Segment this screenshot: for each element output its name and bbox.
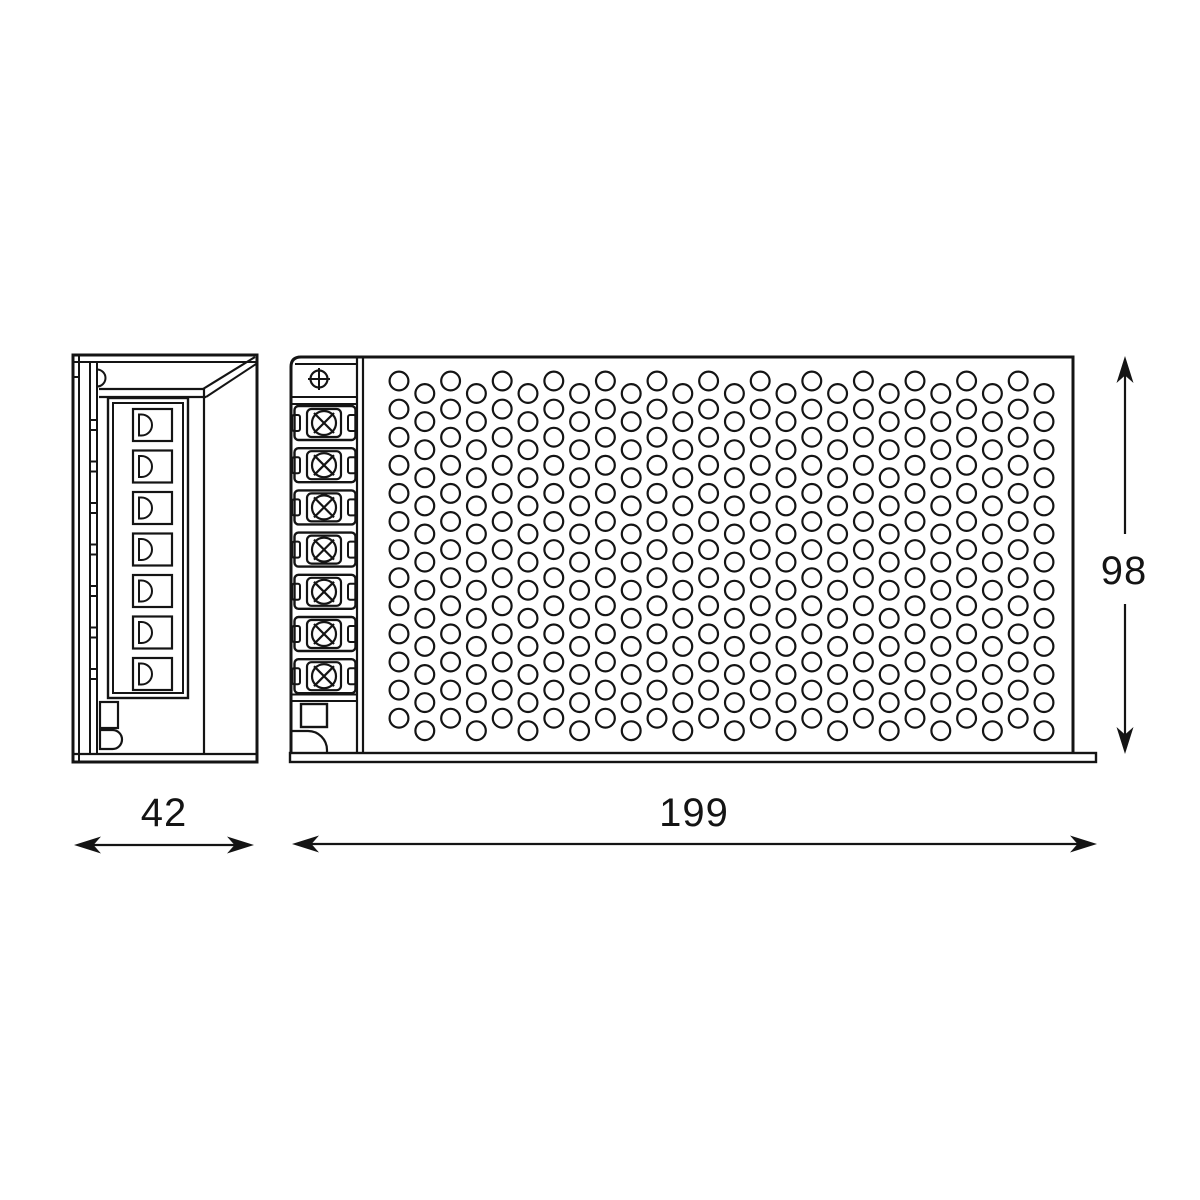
vent-hole: [880, 553, 899, 572]
vent-hole: [519, 412, 538, 431]
vent-hole: [570, 497, 589, 516]
vent-hole: [467, 665, 486, 684]
vent-hole: [880, 637, 899, 656]
vent-hole: [777, 581, 796, 600]
vent-hole: [751, 709, 770, 728]
vent-hole: [802, 512, 821, 531]
vent-hole: [931, 693, 950, 712]
vent-hole: [1035, 693, 1054, 712]
vent-hole: [725, 553, 744, 572]
vent-hole: [828, 440, 847, 459]
vent-hole: [751, 625, 770, 644]
side-connector-slot: [133, 658, 172, 690]
vent-hole: [983, 553, 1002, 572]
vent-hole: [519, 693, 538, 712]
vent-hole: [519, 497, 538, 516]
vent-hole: [854, 653, 873, 672]
vent-hole: [519, 525, 538, 544]
vent-hole: [1035, 412, 1054, 431]
vent-hole: [828, 609, 847, 628]
vent-hole: [673, 412, 692, 431]
vent-hole: [931, 384, 950, 403]
vent-hole: [673, 665, 692, 684]
vent-hole: [390, 681, 409, 700]
vent-hole: [751, 400, 770, 419]
vent-hole: [570, 412, 589, 431]
terminal-tab-left: [292, 668, 300, 684]
side-top-notch: [97, 370, 106, 387]
vent-hole: [802, 540, 821, 559]
vent-hole: [570, 384, 589, 403]
vent-hole: [544, 456, 563, 475]
vent-hole: [983, 440, 1002, 459]
vent-hole: [1009, 372, 1028, 391]
vent-hole: [415, 637, 434, 656]
vent-hole: [519, 637, 538, 656]
vent-hole: [648, 681, 667, 700]
vent-hole: [544, 625, 563, 644]
vent-hole: [699, 372, 718, 391]
vent-hole: [931, 468, 950, 487]
vent-hole: [673, 468, 692, 487]
front-view: [290, 357, 1096, 762]
vent-hole: [983, 497, 1002, 516]
vent-hole: [390, 709, 409, 728]
vent-hole: [390, 596, 409, 615]
vent-hole: [570, 468, 589, 487]
vent-hole: [570, 553, 589, 572]
ventilation-grid: [390, 372, 1054, 740]
vent-hole: [519, 581, 538, 600]
bevel-diagonal-2: [206, 364, 256, 397]
vent-hole: [777, 693, 796, 712]
terminal-block: [292, 533, 356, 567]
vent-hole: [648, 625, 667, 644]
vent-hole: [622, 581, 641, 600]
vent-hole: [725, 665, 744, 684]
vent-hole: [828, 553, 847, 572]
vent-hole: [467, 609, 486, 628]
vent-hole: [415, 440, 434, 459]
vent-hole: [751, 540, 770, 559]
vent-hole: [493, 512, 512, 531]
vent-hole: [699, 428, 718, 447]
vent-hole: [622, 525, 641, 544]
vent-hole: [415, 384, 434, 403]
vent-hole: [519, 609, 538, 628]
vent-hole: [983, 384, 1002, 403]
vent-hole: [699, 709, 718, 728]
vent-hole: [622, 693, 641, 712]
vent-hole: [957, 653, 976, 672]
vent-hole: [828, 637, 847, 656]
vent-hole: [1009, 456, 1028, 475]
vent-hole: [1009, 625, 1028, 644]
vent-hole: [622, 440, 641, 459]
vent-hole: [777, 468, 796, 487]
vent-hole: [570, 637, 589, 656]
vent-hole: [957, 681, 976, 700]
vent-hole: [1035, 721, 1054, 740]
vent-hole: [828, 665, 847, 684]
vent-hole: [493, 372, 512, 391]
vent-hole: [648, 568, 667, 587]
vent-hole: [648, 372, 667, 391]
vent-hole: [751, 512, 770, 531]
vent-hole: [699, 568, 718, 587]
vent-hole: [906, 625, 925, 644]
vent-hole: [854, 456, 873, 475]
vent-hole: [493, 568, 512, 587]
vent-hole: [1009, 681, 1028, 700]
vent-hole: [699, 456, 718, 475]
vent-hole: [751, 484, 770, 503]
vent-hole: [596, 372, 615, 391]
vent-hole: [467, 693, 486, 712]
vent-hole: [673, 721, 692, 740]
vent-hole: [441, 625, 460, 644]
vent-hole: [648, 540, 667, 559]
vent-hole: [751, 372, 770, 391]
vent-hole: [983, 525, 1002, 544]
vent-hole: [699, 596, 718, 615]
vent-hole: [570, 665, 589, 684]
vent-hole: [957, 709, 976, 728]
vent-hole: [802, 484, 821, 503]
vent-hole: [957, 428, 976, 447]
dimension-label-front-height: 98: [1101, 549, 1148, 593]
vent-hole: [983, 693, 1002, 712]
vent-hole: [1035, 384, 1054, 403]
side-bottom-tab: [100, 702, 118, 728]
vent-hole: [544, 540, 563, 559]
vent-hole: [622, 384, 641, 403]
rail-tick: [90, 545, 97, 555]
vent-hole: [673, 440, 692, 459]
vent-hole: [1035, 468, 1054, 487]
vent-hole: [751, 568, 770, 587]
vent-hole: [957, 484, 976, 503]
vent-hole: [596, 568, 615, 587]
vent-hole: [622, 468, 641, 487]
vent-hole: [1009, 568, 1028, 587]
vent-hole: [519, 553, 538, 572]
vent-hole: [906, 540, 925, 559]
vent-hole: [725, 721, 744, 740]
side-view: [73, 355, 257, 762]
vent-hole: [854, 681, 873, 700]
vent-hole: [1009, 653, 1028, 672]
technical-drawing: 42 199 98: [0, 0, 1200, 1200]
terminal-tab-left: [292, 542, 300, 558]
vent-hole: [648, 596, 667, 615]
slot-contact: [139, 622, 152, 643]
vent-hole: [1009, 709, 1028, 728]
vent-hole: [931, 440, 950, 459]
vent-hole: [1035, 525, 1054, 544]
vent-hole: [441, 540, 460, 559]
vent-hole: [983, 581, 1002, 600]
vent-hole: [467, 384, 486, 403]
vent-hole: [390, 625, 409, 644]
vent-hole: [828, 384, 847, 403]
vent-hole: [415, 525, 434, 544]
vent-hole: [493, 653, 512, 672]
vent-hole: [906, 568, 925, 587]
vent-hole: [880, 440, 899, 459]
vent-hole: [1009, 512, 1028, 531]
vent-hole: [880, 721, 899, 740]
vent-hole: [570, 440, 589, 459]
vent-hole: [570, 721, 589, 740]
vent-hole: [519, 665, 538, 684]
vent-hole: [802, 428, 821, 447]
vent-hole: [906, 709, 925, 728]
vent-hole: [1009, 484, 1028, 503]
vent-hole: [441, 681, 460, 700]
terminal-block: [292, 617, 356, 651]
vent-hole: [854, 372, 873, 391]
side-bottom-lug: [100, 730, 122, 749]
vent-hole: [906, 681, 925, 700]
vent-hole: [880, 412, 899, 431]
vent-hole: [544, 681, 563, 700]
vent-hole: [390, 428, 409, 447]
dimension-front-width: 199: [292, 791, 1097, 853]
ground-screw-icon: [308, 368, 330, 390]
vent-hole: [906, 484, 925, 503]
slot-contact: [139, 664, 152, 685]
vent-hole: [493, 681, 512, 700]
drawing-canvas: 42 199 98: [0, 0, 1200, 1200]
vent-hole: [415, 581, 434, 600]
vent-hole: [467, 525, 486, 544]
vent-hole: [415, 609, 434, 628]
vent-hole: [648, 428, 667, 447]
vent-hole: [544, 512, 563, 531]
vent-hole: [467, 412, 486, 431]
vent-hole: [777, 440, 796, 459]
side-connector-slot: [133, 534, 172, 566]
vent-hole: [648, 653, 667, 672]
terminal-tab-left: [292, 457, 300, 473]
vent-hole: [957, 372, 976, 391]
vent-hole: [673, 609, 692, 628]
rail-tick: [90, 503, 97, 513]
vent-hole: [725, 440, 744, 459]
vent-hole: [828, 581, 847, 600]
vent-hole: [441, 456, 460, 475]
vent-hole: [415, 721, 434, 740]
vent-hole: [906, 596, 925, 615]
vent-hole: [880, 384, 899, 403]
vent-hole: [441, 400, 460, 419]
vent-hole: [441, 653, 460, 672]
vent-hole: [777, 384, 796, 403]
slot-contact: [139, 415, 152, 436]
vent-hole: [802, 625, 821, 644]
vent-hole: [1009, 400, 1028, 419]
vent-hole: [751, 596, 770, 615]
vent-hole: [415, 553, 434, 572]
vent-hole: [544, 653, 563, 672]
side-connector-slot: [133, 409, 172, 441]
vent-hole: [725, 497, 744, 516]
vent-hole: [957, 456, 976, 475]
vent-hole: [596, 625, 615, 644]
vent-hole: [519, 468, 538, 487]
vent-hole: [983, 721, 1002, 740]
vent-hole: [880, 609, 899, 628]
vent-hole: [1035, 497, 1054, 516]
slot-contact: [139, 498, 152, 519]
vent-hole: [854, 512, 873, 531]
vent-hole: [880, 693, 899, 712]
vent-hole: [622, 412, 641, 431]
vent-hole: [1035, 440, 1054, 459]
vent-hole: [441, 428, 460, 447]
vent-hole: [802, 709, 821, 728]
vent-hole: [802, 681, 821, 700]
vent-hole: [1035, 553, 1054, 572]
rail-tick: [90, 669, 97, 679]
vent-hole: [957, 568, 976, 587]
vent-hole: [957, 625, 976, 644]
vent-hole: [802, 653, 821, 672]
vent-hole: [673, 497, 692, 516]
vent-hole: [854, 596, 873, 615]
vent-hole: [931, 637, 950, 656]
vent-hole: [725, 525, 744, 544]
vent-hole: [957, 596, 976, 615]
vent-hole: [931, 553, 950, 572]
slot-contact: [139, 456, 152, 477]
vent-hole: [751, 653, 770, 672]
vent-hole: [596, 653, 615, 672]
slot-contact: [139, 581, 152, 602]
vent-hole: [802, 372, 821, 391]
indicator-window: [301, 704, 327, 727]
vent-hole: [622, 665, 641, 684]
vent-hole: [880, 468, 899, 487]
vent-hole: [390, 372, 409, 391]
vent-hole: [467, 497, 486, 516]
terminal-tab-left: [292, 499, 300, 515]
vent-hole: [1009, 540, 1028, 559]
vent-hole: [415, 693, 434, 712]
terminal-tab-left: [292, 584, 300, 600]
vent-hole: [673, 525, 692, 544]
vent-hole: [441, 484, 460, 503]
vent-hole: [441, 512, 460, 531]
vent-hole: [570, 525, 589, 544]
vent-hole: [725, 637, 744, 656]
vent-hole: [622, 553, 641, 572]
terminal-tab-left: [292, 415, 300, 431]
vent-hole: [802, 400, 821, 419]
side-terminal-panel-outer: [108, 398, 188, 698]
vent-hole: [1035, 609, 1054, 628]
vent-hole: [544, 568, 563, 587]
vent-hole: [1035, 581, 1054, 600]
vent-hole: [673, 384, 692, 403]
vent-hole: [544, 709, 563, 728]
vent-hole: [622, 721, 641, 740]
vent-hole: [1009, 428, 1028, 447]
vent-hole: [777, 665, 796, 684]
terminal-block: [292, 575, 356, 609]
vent-hole: [802, 456, 821, 475]
vent-hole: [441, 596, 460, 615]
vent-hole: [544, 484, 563, 503]
vent-hole: [777, 609, 796, 628]
vent-hole: [751, 456, 770, 475]
vent-hole: [493, 456, 512, 475]
side-connector-slot: [133, 617, 172, 649]
vent-hole: [390, 456, 409, 475]
vent-hole: [725, 581, 744, 600]
vent-hole: [415, 497, 434, 516]
side-connector-slot: [133, 492, 172, 524]
side-rail-ticks: [90, 420, 97, 679]
vent-hole: [596, 512, 615, 531]
vent-hole: [854, 428, 873, 447]
vent-hole: [828, 693, 847, 712]
vent-hole: [673, 637, 692, 656]
vent-hole: [493, 400, 512, 419]
terminal-block: [292, 448, 356, 482]
vent-hole: [983, 637, 1002, 656]
vent-hole: [596, 400, 615, 419]
vent-hole: [467, 440, 486, 459]
vent-hole: [725, 693, 744, 712]
vent-hole: [596, 709, 615, 728]
vent-hole: [725, 384, 744, 403]
vent-hole: [880, 581, 899, 600]
vent-hole: [906, 372, 925, 391]
vent-hole: [390, 540, 409, 559]
vent-hole: [699, 484, 718, 503]
vent-hole: [906, 456, 925, 475]
vent-hole: [751, 681, 770, 700]
vent-hole: [854, 484, 873, 503]
vent-hole: [648, 484, 667, 503]
vent-hole: [519, 384, 538, 403]
vent-hole: [777, 525, 796, 544]
vent-hole: [854, 400, 873, 419]
vent-hole: [983, 665, 1002, 684]
vent-hole: [390, 484, 409, 503]
vent-hole: [828, 497, 847, 516]
strip-corner-curve: [291, 731, 327, 753]
vent-hole: [648, 400, 667, 419]
vent-hole: [519, 440, 538, 459]
vent-hole: [570, 609, 589, 628]
vent-hole: [777, 721, 796, 740]
vent-hole: [777, 637, 796, 656]
vent-hole: [467, 721, 486, 740]
vent-hole: [467, 468, 486, 487]
vent-hole: [596, 484, 615, 503]
vent-hole: [596, 681, 615, 700]
vent-hole: [1035, 637, 1054, 656]
vent-hole: [880, 497, 899, 516]
vent-hole: [493, 484, 512, 503]
vent-hole: [802, 596, 821, 615]
terminal-block: [292, 490, 356, 524]
vent-hole: [544, 400, 563, 419]
vent-hole: [957, 512, 976, 531]
